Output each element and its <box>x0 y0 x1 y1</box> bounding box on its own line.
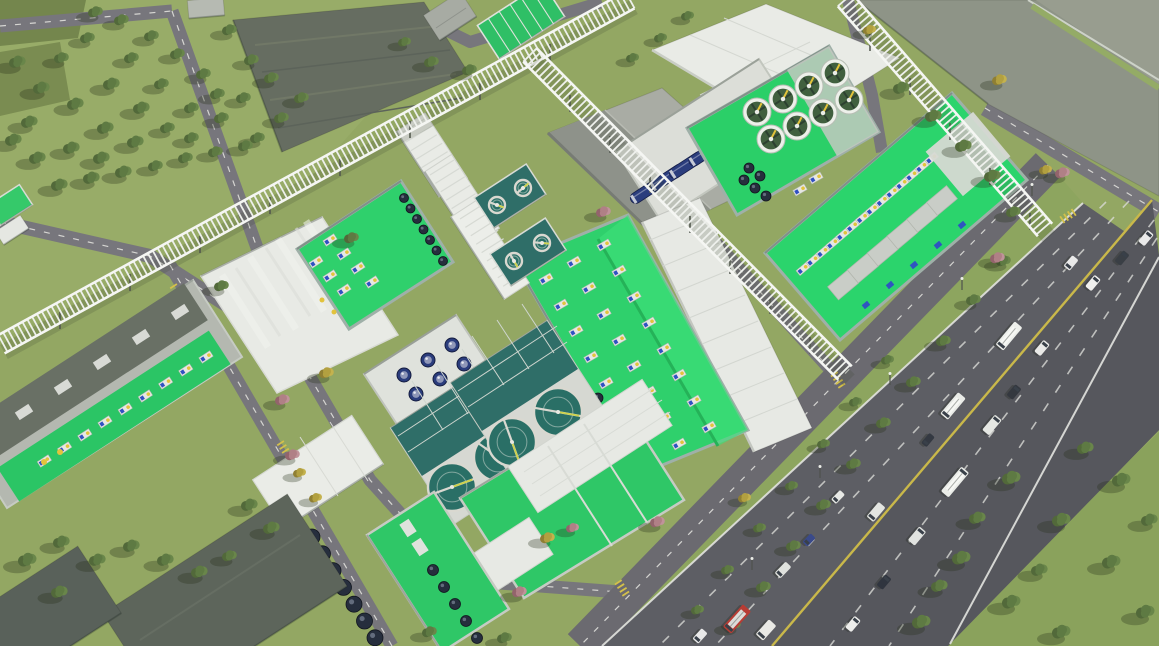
aerial-plant-render <box>0 0 1159 646</box>
scene-svg <box>0 0 1159 646</box>
building-warehouse-small-a <box>187 0 224 19</box>
